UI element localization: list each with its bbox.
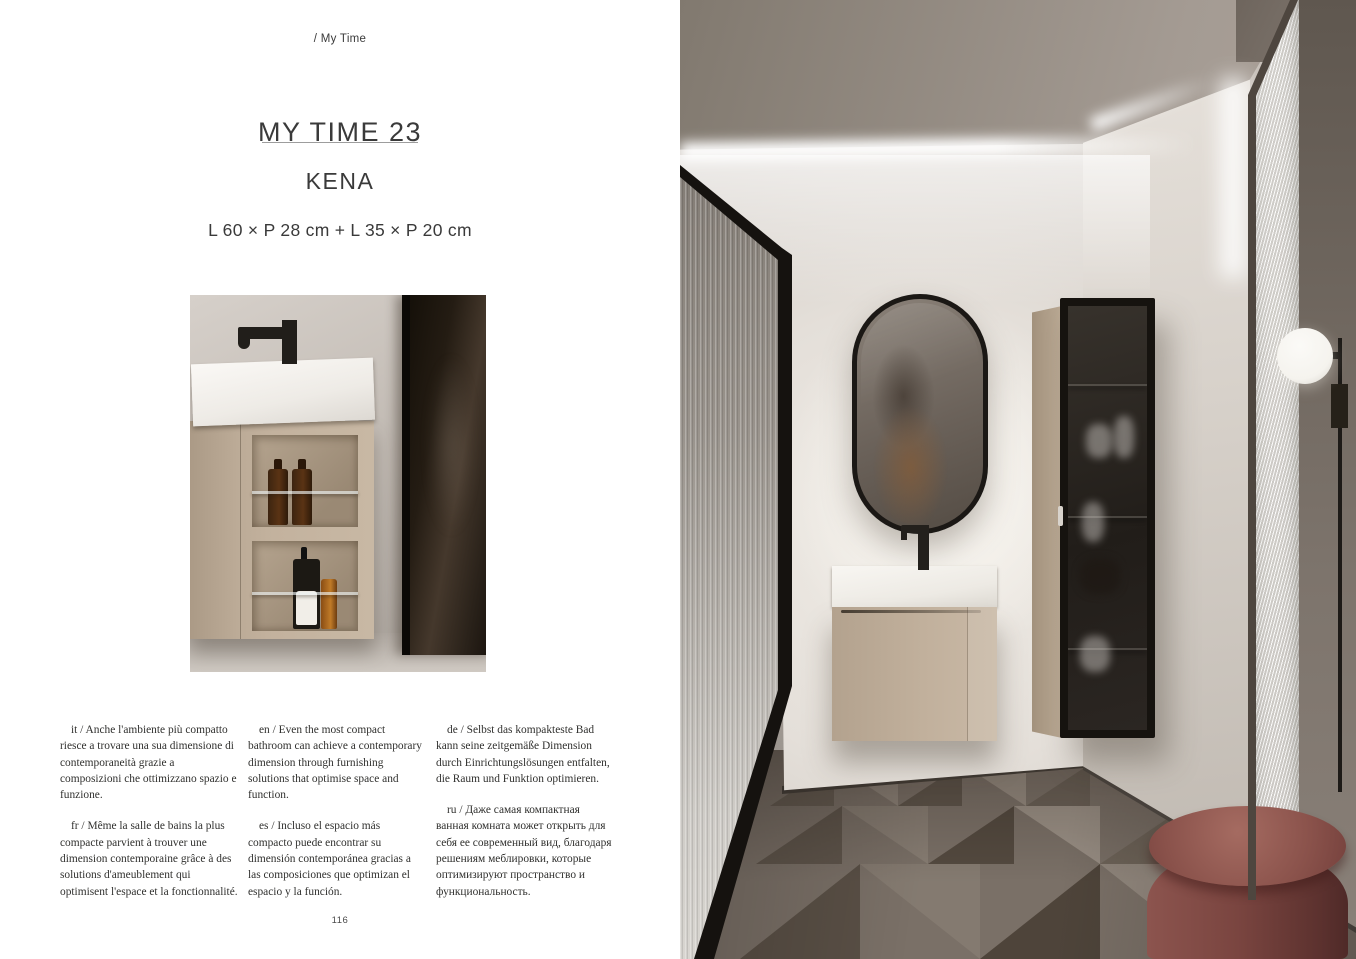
window-mesh-screen xyxy=(1251,0,1299,903)
description-ru: ru / Даже самая компактная ванная комнат… xyxy=(436,802,614,900)
glass-shelf xyxy=(252,491,358,494)
faucet-spout-tip xyxy=(238,337,250,349)
cabinet-dark-item xyxy=(1080,558,1120,594)
description-fr: fr / Même la salle de bains la plus comp… xyxy=(60,818,238,899)
basin-faucet-tip xyxy=(901,531,907,540)
wall-hung-vanity xyxy=(832,607,997,741)
room-photo xyxy=(680,0,1356,959)
description-column-it-fr: it / Anche l'ambiente più compatto riesc… xyxy=(60,722,238,915)
mirror-reflection xyxy=(861,303,979,525)
pouf-cushion-top xyxy=(1149,806,1346,886)
description-it: it / Anche l'ambiente più compatto riesc… xyxy=(60,722,238,803)
catalog-spread: / My Time MY TIME 23 KENA L 60 × P 28 cm… xyxy=(0,0,1356,959)
description-es: es / Incluso el espacio más compacto pue… xyxy=(248,818,426,899)
amber-bottle xyxy=(268,469,288,525)
vanity-handle-groove xyxy=(841,610,981,613)
wall-lamp-globe xyxy=(1277,328,1333,384)
product-photo xyxy=(190,295,486,672)
page-number: 116 xyxy=(0,915,680,926)
collection-name: KENA xyxy=(0,168,680,195)
left-page: / My Time MY TIME 23 KENA L 60 × P 28 cm… xyxy=(0,0,680,959)
tall-glass-cabinet xyxy=(1060,298,1155,738)
cabinet-smoked-glass xyxy=(1068,306,1147,730)
glass-shelf xyxy=(252,592,358,595)
cabinet-bottle xyxy=(1114,416,1134,458)
burgundy-pouf xyxy=(1147,806,1348,959)
cabinet-shelf xyxy=(1068,384,1147,386)
wall-hung-basin xyxy=(832,566,997,607)
amber-bottle xyxy=(292,469,312,525)
vanity-door xyxy=(190,421,241,639)
description-en: en / Even the most compact bathroom can … xyxy=(248,722,426,803)
cabinet-handle xyxy=(1058,506,1063,526)
cabinet-bottle xyxy=(1082,502,1104,542)
window-corner-glow xyxy=(1220,78,1246,278)
title-divider xyxy=(262,142,418,143)
cabinet-bottle xyxy=(1080,636,1110,672)
page-title: MY TIME 23 xyxy=(0,117,680,148)
vanity-side-panel xyxy=(968,607,997,741)
description-column-en-es: en / Even the most compact bathroom can … xyxy=(248,722,426,915)
cabinet-shelf xyxy=(1068,516,1147,518)
small-amber-bottle xyxy=(321,579,337,629)
oval-mirror xyxy=(852,294,988,534)
description-de: de / Selbst das kompakteste Bad kann sei… xyxy=(436,722,614,787)
smoked-glass-door xyxy=(402,295,486,655)
description-column-de-ru: de / Selbst das kompakteste Bad kann sei… xyxy=(436,722,614,915)
cabinet-bottle xyxy=(1086,424,1112,458)
product-dimensions: L 60 × P 28 cm + L 35 × P 20 cm xyxy=(0,220,680,241)
vanity-cabinet xyxy=(190,421,374,639)
washbasin xyxy=(191,358,375,427)
breadcrumb: / My Time xyxy=(0,33,680,45)
bottle-label xyxy=(296,591,317,625)
wall-lamp-bracket xyxy=(1331,384,1348,428)
